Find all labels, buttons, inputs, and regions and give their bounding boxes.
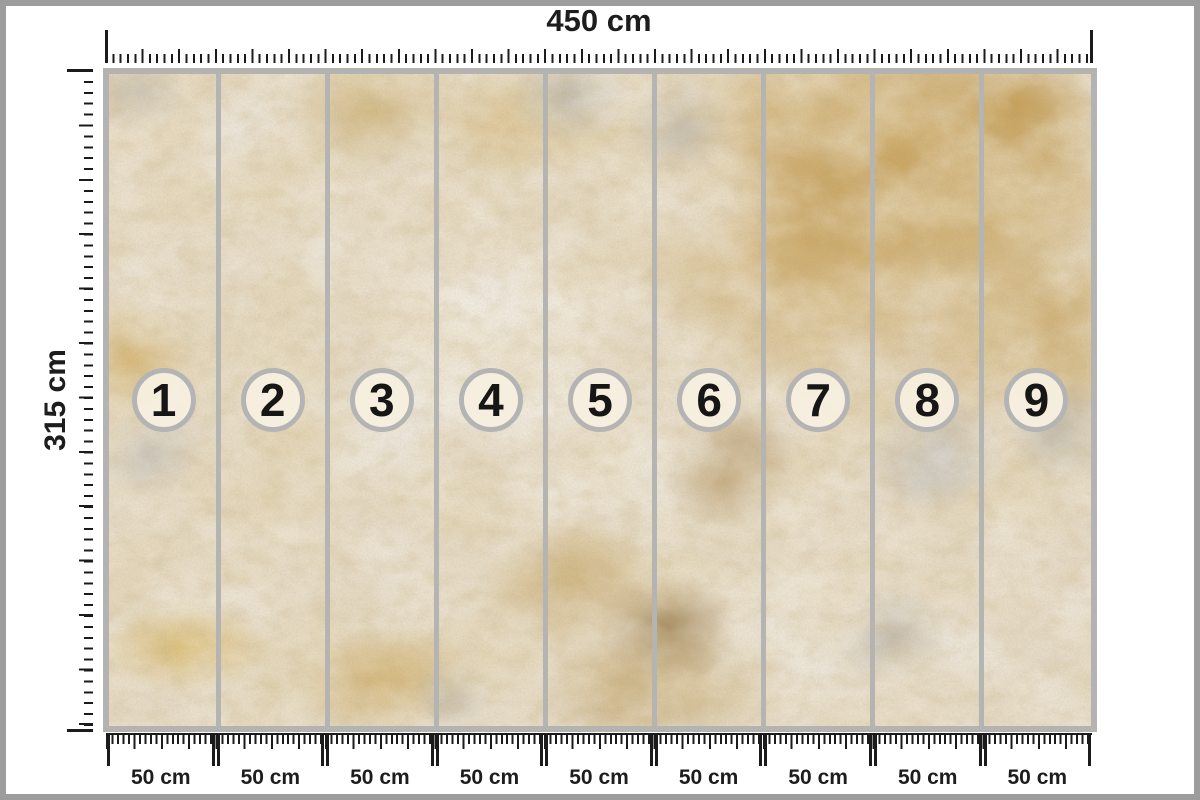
- segment-width-label: 50 cm: [325, 767, 435, 789]
- panel-number: 6: [696, 377, 722, 423]
- panel-number: 3: [369, 377, 395, 423]
- panel-number: 2: [260, 377, 286, 423]
- ruler-segment: 50 cm: [106, 735, 216, 789]
- panel-divider: [434, 74, 439, 726]
- ruler-segment: 50 cm: [654, 735, 764, 789]
- segment-width-label: 50 cm: [654, 767, 764, 789]
- segment-width-label: 50 cm: [216, 767, 326, 789]
- wallpaper-mockup-page: 450 cm 315 cm: [0, 0, 1200, 800]
- panel-divider: [543, 74, 548, 726]
- panel-number-badge: 4: [459, 368, 523, 432]
- panel-number: 7: [805, 377, 831, 423]
- bottom-ruler: 50 cm 50 cm 50 cm 50 cm 50 cm 50 cm 50 c…: [106, 733, 1092, 789]
- mural-frame: 1 2 3 4 5 6 7 8 9: [103, 68, 1097, 732]
- panel-number-badge: 9: [1004, 368, 1068, 432]
- segment-width-label: 50 cm: [873, 767, 983, 789]
- panel-number: 1: [151, 377, 177, 423]
- panel-number-badge: 7: [786, 368, 850, 432]
- top-ruler-ticks: [105, 30, 1093, 63]
- panel-number: 5: [587, 377, 613, 423]
- panel-number-badge: 5: [568, 368, 632, 432]
- panel-number: 9: [1024, 377, 1050, 423]
- panel-number-badge: 3: [350, 368, 414, 432]
- ruler-segment: 50 cm: [435, 735, 545, 789]
- panel-divider: [979, 74, 984, 726]
- panel-number-badge: 1: [132, 368, 196, 432]
- panel-number: 4: [478, 377, 504, 423]
- panel-divider: [216, 74, 221, 726]
- ruler-segment: 50 cm: [983, 735, 1093, 789]
- ruler-segment: 50 cm: [873, 735, 983, 789]
- ruler-segment: 50 cm: [763, 735, 873, 789]
- segment-width-label: 50 cm: [763, 767, 873, 789]
- panel-number: 8: [915, 377, 941, 423]
- panel-divider: [652, 74, 657, 726]
- ruler-segment: 50 cm: [544, 735, 654, 789]
- panel-number-badge: 8: [895, 368, 959, 432]
- left-ruler-ticks: [67, 70, 93, 732]
- segment-width-label: 50 cm: [983, 767, 1093, 789]
- panel-number-badge: 6: [677, 368, 741, 432]
- panel-divider: [325, 74, 330, 726]
- mural-texture: 1 2 3 4 5 6 7 8 9: [109, 74, 1091, 726]
- ruler-segment: 50 cm: [325, 735, 435, 789]
- panel-divider: [761, 74, 766, 726]
- segment-width-label: 50 cm: [106, 767, 216, 789]
- panel-divider: [870, 74, 875, 726]
- segment-width-label: 50 cm: [544, 767, 654, 789]
- ruler-segment: 50 cm: [216, 735, 326, 789]
- panel-number-badge: 2: [241, 368, 305, 432]
- segment-width-label: 50 cm: [435, 767, 545, 789]
